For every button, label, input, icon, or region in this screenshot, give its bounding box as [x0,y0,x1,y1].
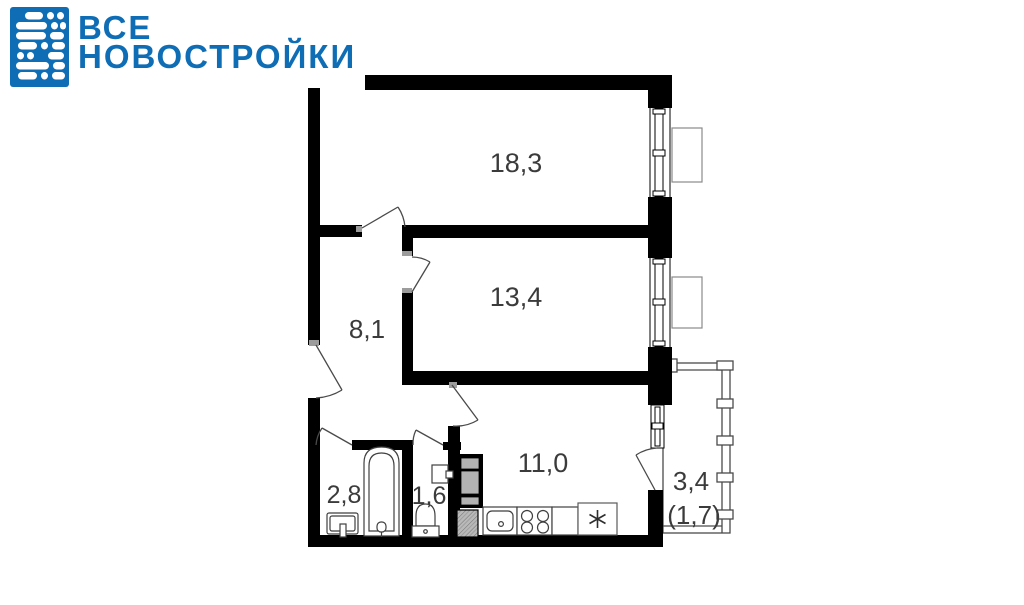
wall-segment [405,225,672,238]
balcony-door-window [651,405,664,448]
label-toilet: 1,6 [412,482,447,510]
label-kitchen: 11,0 [518,448,569,478]
stove-icon [517,507,552,535]
door-jambs [309,226,457,388]
kitchen-sink-icon [483,507,517,535]
label-room-medium: 13,4 [490,282,543,312]
bath-sink-icon [327,513,358,537]
wall-segment [308,88,320,345]
label-balcony: 3,4 [673,466,709,496]
wall-segment [308,535,663,547]
floor-plan: 18,3 13,4 8,1 2,8 1,6 11,0 3,4 (1,7) [0,0,1024,605]
ac-unit-top [672,128,702,182]
entrance-door [316,345,342,398]
vent-shaft-icon [457,454,483,537]
toilet-door [413,430,443,445]
wall-segment [318,225,362,237]
wall-segment [365,75,672,90]
label-hallway: 8,1 [349,314,385,344]
bathtub-icon [364,447,399,537]
exterior-units [672,128,702,328]
balcony-door [636,448,657,490]
kitchen-counter [552,507,578,535]
label-room-large: 18,3 [490,148,543,178]
wall-segment [648,490,663,535]
fixtures [327,447,617,537]
bathroom-door [316,428,352,445]
fridge-icon [578,503,617,535]
label-bathroom: 2,8 [327,481,362,509]
window-room-medium [650,258,670,347]
window-room-large [650,108,670,197]
wall-segment [405,371,663,385]
door-room-large [362,207,405,228]
wall-segment [648,75,672,108]
kitchen-door [452,385,478,426]
door-room-medium [412,257,430,292]
ac-unit-middle [672,277,702,328]
wall-segment [308,398,320,547]
label-balcony-reduced: (1,7) [667,500,720,530]
